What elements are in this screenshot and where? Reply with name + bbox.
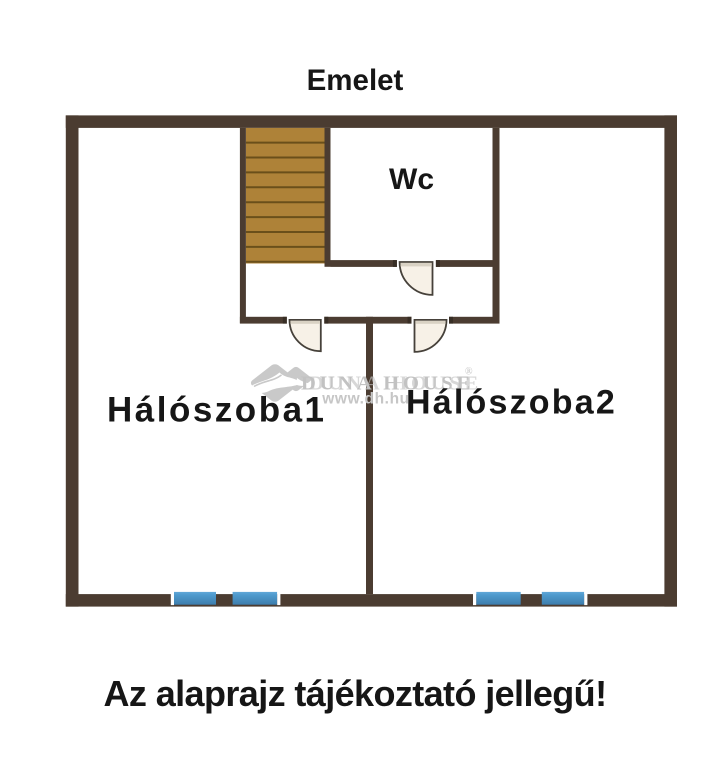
svg-text:Wc: Wc	[389, 163, 434, 196]
svg-text:Az alaprajz tájékoztató jelleg: Az alaprajz tájékoztató jellegű!	[104, 673, 607, 714]
svg-text:Hálószoba2: Hálószoba2	[406, 384, 617, 422]
svg-text:®: ®	[465, 367, 473, 378]
svg-text:Emelet: Emelet	[307, 64, 404, 97]
svg-text:Hálószoba1: Hálószoba1	[107, 391, 327, 430]
svg-text:www.dh.hu: www.dh.hu	[321, 391, 409, 408]
